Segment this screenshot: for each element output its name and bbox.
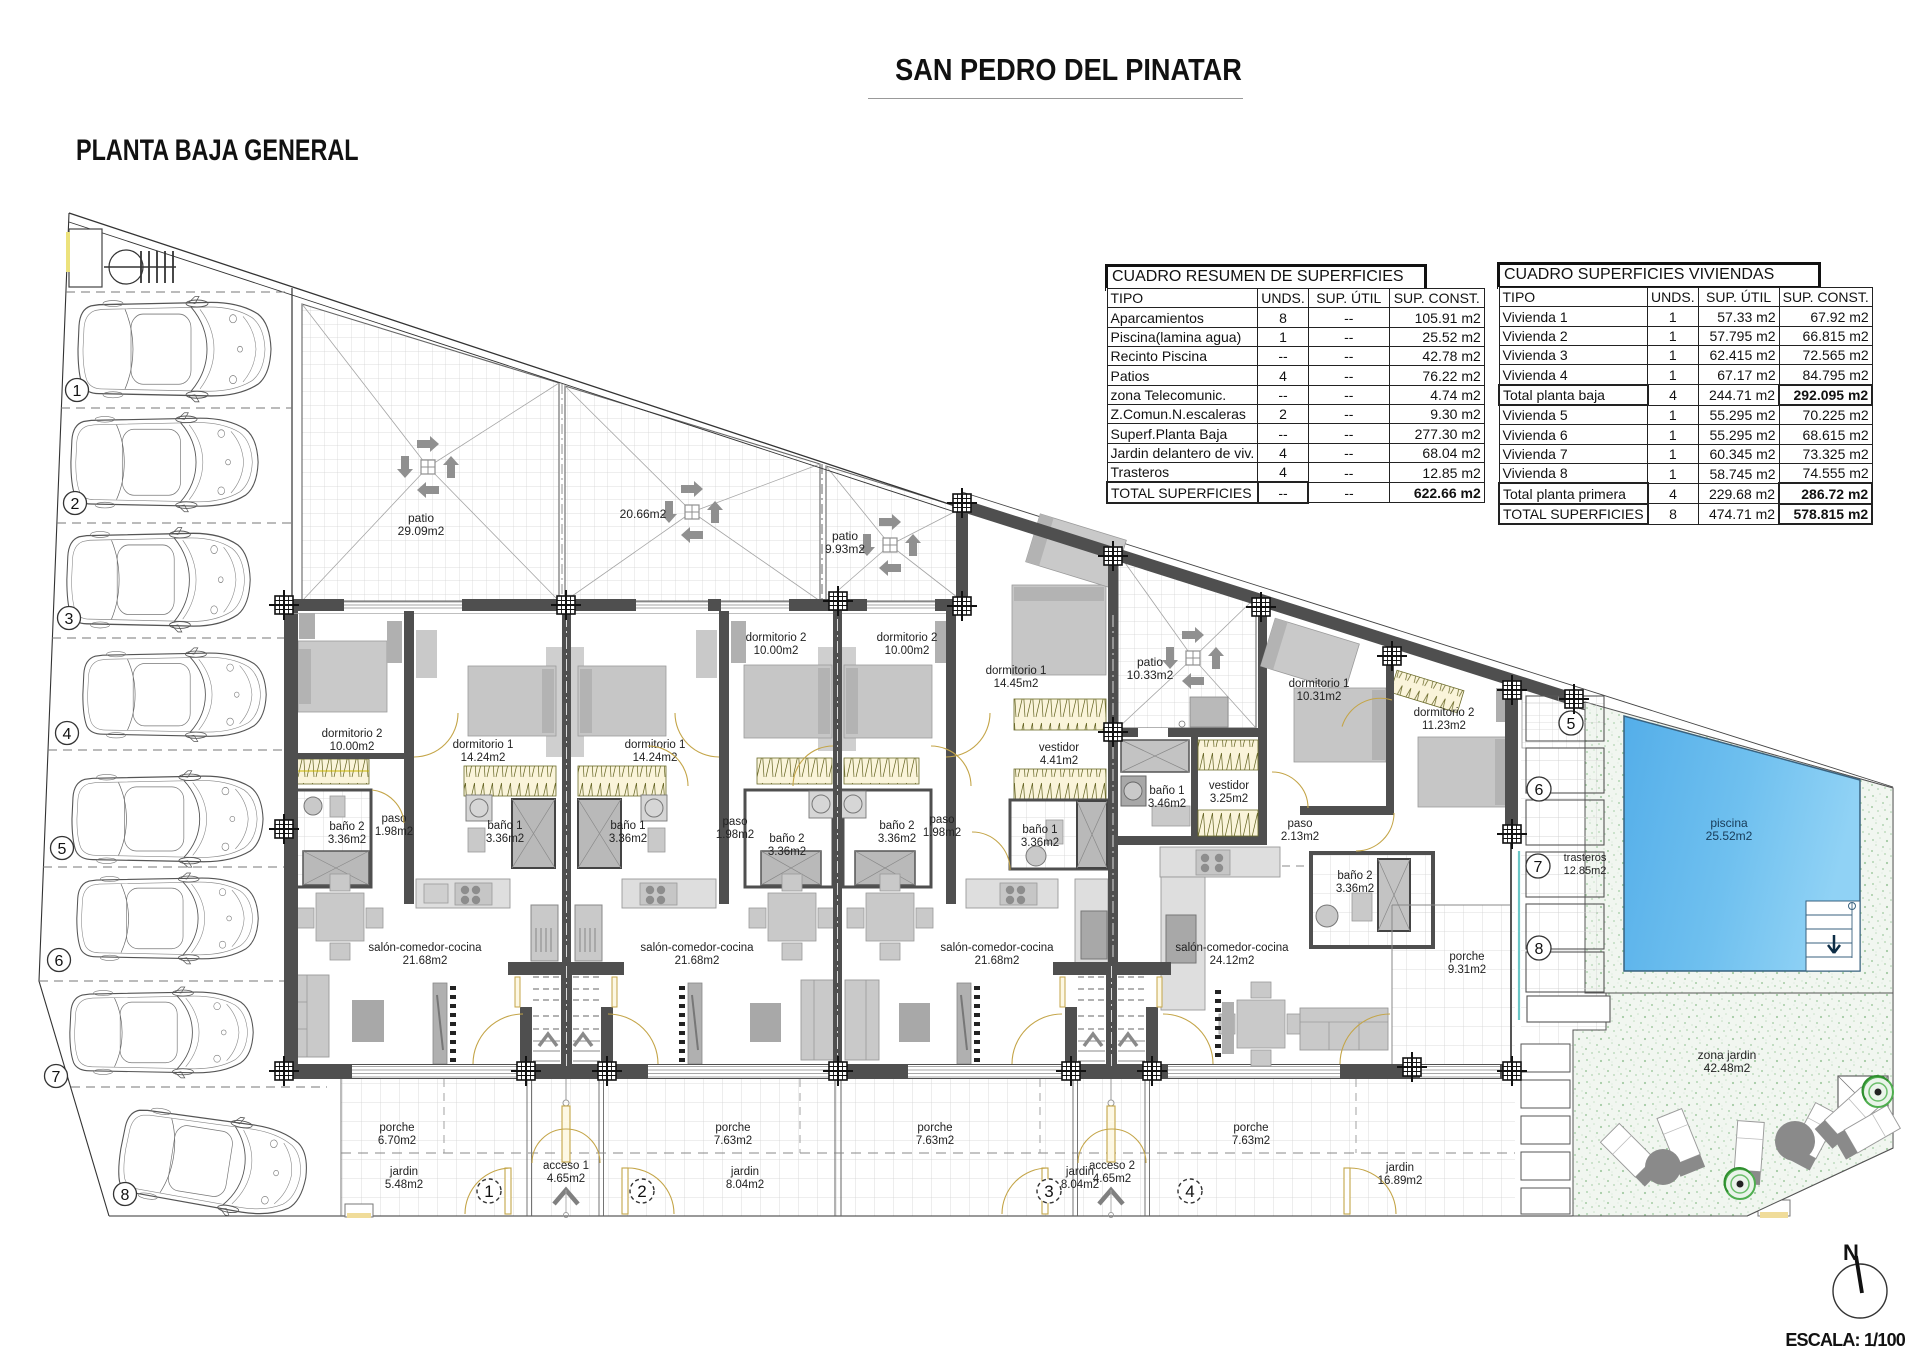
svg-text:paso: paso	[930, 814, 955, 826]
svg-text:paso: paso	[723, 816, 748, 828]
svg-text:5.48m2: 5.48m2	[385, 1179, 423, 1191]
svg-text:8: 8	[121, 1187, 130, 1204]
svg-text:zona jardin: zona jardin	[1698, 1048, 1757, 1062]
svg-text:10.00m2: 10.00m2	[885, 645, 930, 657]
svg-text:jardin: jardin	[730, 1166, 759, 1178]
svg-text:baño 1: baño 1	[1149, 785, 1184, 797]
svg-text:3.46m2: 3.46m2	[1148, 798, 1186, 810]
svg-text:vestidor: vestidor	[1209, 780, 1249, 792]
svg-text:4.65m2: 4.65m2	[1093, 1173, 1131, 1185]
svg-text:42.48m2: 42.48m2	[1704, 1061, 1751, 1075]
svg-text:jardin: jardin	[1385, 1162, 1414, 1174]
svg-text:3.36m2: 3.36m2	[878, 833, 916, 845]
svg-text:porche: porche	[917, 1122, 952, 1134]
svg-text:3: 3	[1044, 1182, 1053, 1201]
svg-text:8: 8	[1535, 941, 1544, 958]
svg-text:11.23m2: 11.23m2	[1422, 720, 1466, 732]
svg-text:6: 6	[1535, 782, 1544, 799]
svg-text:20.66m2: 20.66m2	[620, 507, 667, 521]
svg-text:7.63m2: 7.63m2	[916, 1135, 954, 1147]
svg-text:7.63m2: 7.63m2	[714, 1135, 752, 1147]
svg-text:3.36m2: 3.36m2	[328, 834, 366, 846]
svg-text:3.36m2: 3.36m2	[1021, 837, 1059, 849]
svg-text:21.68m2: 21.68m2	[975, 955, 1020, 967]
svg-text:piscina: piscina	[1710, 816, 1748, 830]
svg-text:patio: patio	[832, 529, 858, 543]
svg-text:12.85m2: 12.85m2	[1564, 865, 1607, 877]
svg-text:1.98m2: 1.98m2	[375, 826, 413, 838]
svg-text:dormitorio 2: dormitorio 2	[877, 632, 938, 644]
svg-text:3.36m2: 3.36m2	[486, 833, 524, 845]
svg-text:baño 2: baño 2	[329, 821, 364, 833]
svg-text:paso: paso	[1288, 818, 1313, 830]
svg-text:patio: patio	[1137, 655, 1163, 669]
svg-text:3.25m2: 3.25m2	[1210, 793, 1248, 805]
svg-text:6: 6	[55, 953, 64, 970]
svg-text:patio: patio	[408, 511, 434, 525]
svg-text:3: 3	[65, 611, 74, 628]
svg-text:10.31m2: 10.31m2	[1297, 691, 1342, 703]
svg-text:4: 4	[63, 726, 72, 743]
svg-text:dormitorio 1: dormitorio 1	[453, 739, 514, 751]
svg-text:dormitorio 2: dormitorio 2	[1414, 707, 1475, 719]
svg-text:1: 1	[484, 1182, 493, 1201]
svg-text:14.45m2: 14.45m2	[994, 678, 1039, 690]
svg-text:N: N	[1843, 1240, 1859, 1265]
svg-text:29.09m2: 29.09m2	[398, 524, 445, 538]
svg-text:baño 1: baño 1	[610, 820, 645, 832]
svg-text:14.24m2: 14.24m2	[633, 752, 678, 764]
svg-text:24.12m2: 24.12m2	[1210, 955, 1255, 967]
svg-text:baño 2: baño 2	[1337, 870, 1372, 882]
svg-text:salón-comedor-cocina: salón-comedor-cocina	[1175, 942, 1289, 954]
svg-text:jardin: jardin	[389, 1166, 418, 1178]
svg-text:dormitorio 1: dormitorio 1	[1289, 678, 1350, 690]
svg-text:25.52m2: 25.52m2	[1706, 829, 1753, 843]
svg-text:16.89m2: 16.89m2	[1378, 1175, 1423, 1187]
svg-text:baño 1: baño 1	[487, 820, 522, 832]
svg-text:baño 1: baño 1	[1022, 824, 1057, 836]
svg-text:porche: porche	[1449, 951, 1484, 963]
svg-text:dormitorio 1: dormitorio 1	[625, 739, 686, 751]
svg-text:5: 5	[1567, 716, 1576, 733]
svg-text:5: 5	[58, 841, 67, 858]
svg-text:salón-comedor-cocina: salón-comedor-cocina	[940, 942, 1054, 954]
svg-text:porche: porche	[1233, 1122, 1268, 1134]
svg-text:21.68m2: 21.68m2	[675, 955, 720, 967]
svg-text:21.68m2: 21.68m2	[403, 955, 448, 967]
svg-text:vestidor: vestidor	[1039, 742, 1079, 754]
svg-text:porche: porche	[379, 1122, 414, 1134]
svg-text:3.36m2: 3.36m2	[768, 846, 806, 858]
svg-text:trasteros: trasteros	[1564, 852, 1607, 864]
svg-text:9.93m2: 9.93m2	[825, 542, 865, 556]
svg-text:dormitorio 1: dormitorio 1	[986, 665, 1047, 677]
svg-text:baño 2: baño 2	[879, 820, 914, 832]
svg-text:2: 2	[637, 1182, 646, 1201]
svg-text:7: 7	[1534, 859, 1543, 876]
svg-text:1: 1	[73, 383, 82, 400]
svg-text:3.36m2: 3.36m2	[609, 833, 647, 845]
svg-text:10.00m2: 10.00m2	[330, 741, 375, 753]
svg-text:acceso 1: acceso 1	[543, 1160, 589, 1172]
svg-text:acceso 2: acceso 2	[1089, 1160, 1135, 1172]
svg-text:4.65m2: 4.65m2	[547, 1173, 585, 1185]
svg-text:10.00m2: 10.00m2	[754, 645, 799, 657]
svg-text:3.36m2: 3.36m2	[1336, 883, 1374, 895]
svg-text:salón-comedor-cocina: salón-comedor-cocina	[368, 942, 482, 954]
svg-text:4.41m2: 4.41m2	[1040, 755, 1078, 767]
svg-text:salón-comedor-cocina: salón-comedor-cocina	[640, 942, 754, 954]
svg-text:10.33m2: 10.33m2	[1127, 668, 1174, 682]
svg-text:8.04m2: 8.04m2	[726, 1179, 764, 1191]
svg-text:7: 7	[52, 1069, 61, 1086]
svg-text:baño 2: baño 2	[769, 833, 804, 845]
svg-text:1.98m2: 1.98m2	[716, 829, 754, 841]
svg-text:9.31m2: 9.31m2	[1448, 964, 1486, 976]
svg-text:porche: porche	[715, 1122, 750, 1134]
svg-text:14.24m2: 14.24m2	[461, 752, 506, 764]
svg-text:dormitorio 2: dormitorio 2	[322, 728, 383, 740]
svg-text:2: 2	[71, 496, 80, 513]
svg-text:2.13m2: 2.13m2	[1281, 831, 1319, 843]
svg-text:6.70m2: 6.70m2	[378, 1135, 416, 1147]
svg-text:4: 4	[1185, 1182, 1194, 1201]
svg-text:1.98m2: 1.98m2	[923, 827, 961, 839]
svg-text:dormitorio 2: dormitorio 2	[746, 632, 807, 644]
svg-text:7.63m2: 7.63m2	[1232, 1135, 1270, 1147]
